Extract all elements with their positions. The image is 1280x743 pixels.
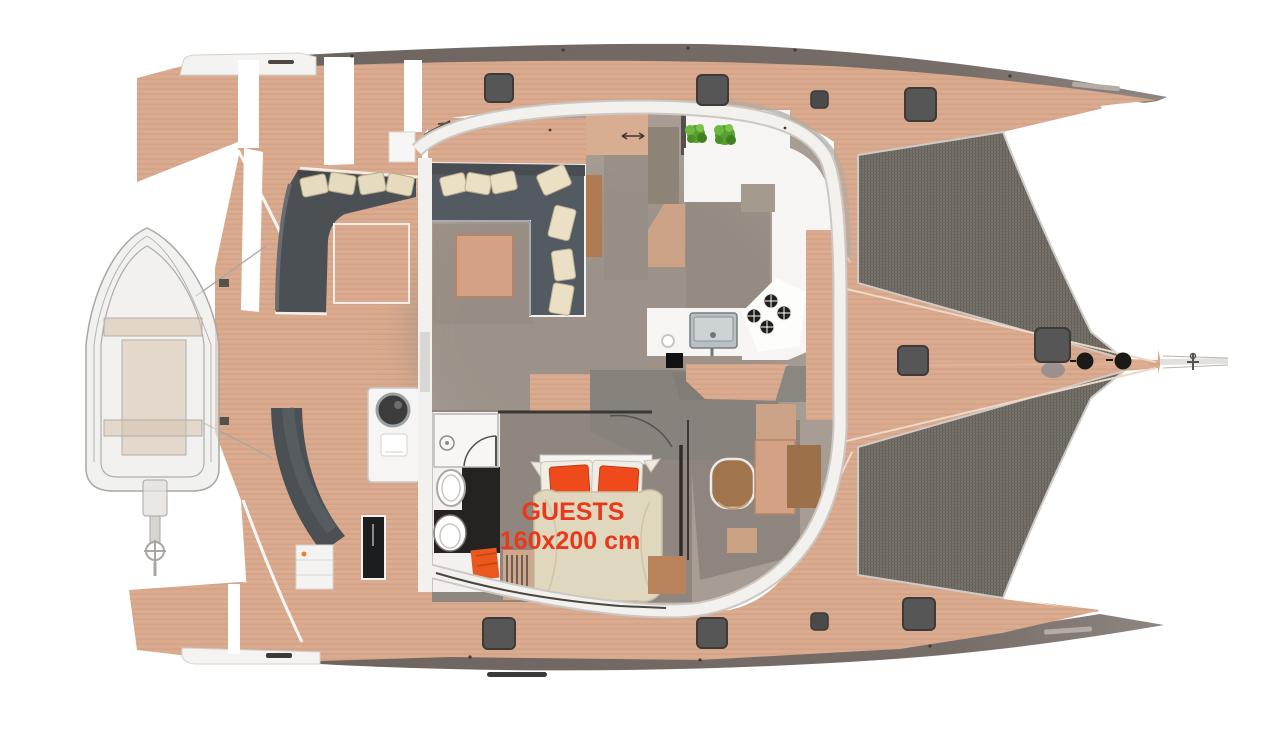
svg-text:160x200 cm: 160x200 cm [500, 527, 640, 555]
svg-text:GUESTS: GUESTS [522, 498, 625, 526]
